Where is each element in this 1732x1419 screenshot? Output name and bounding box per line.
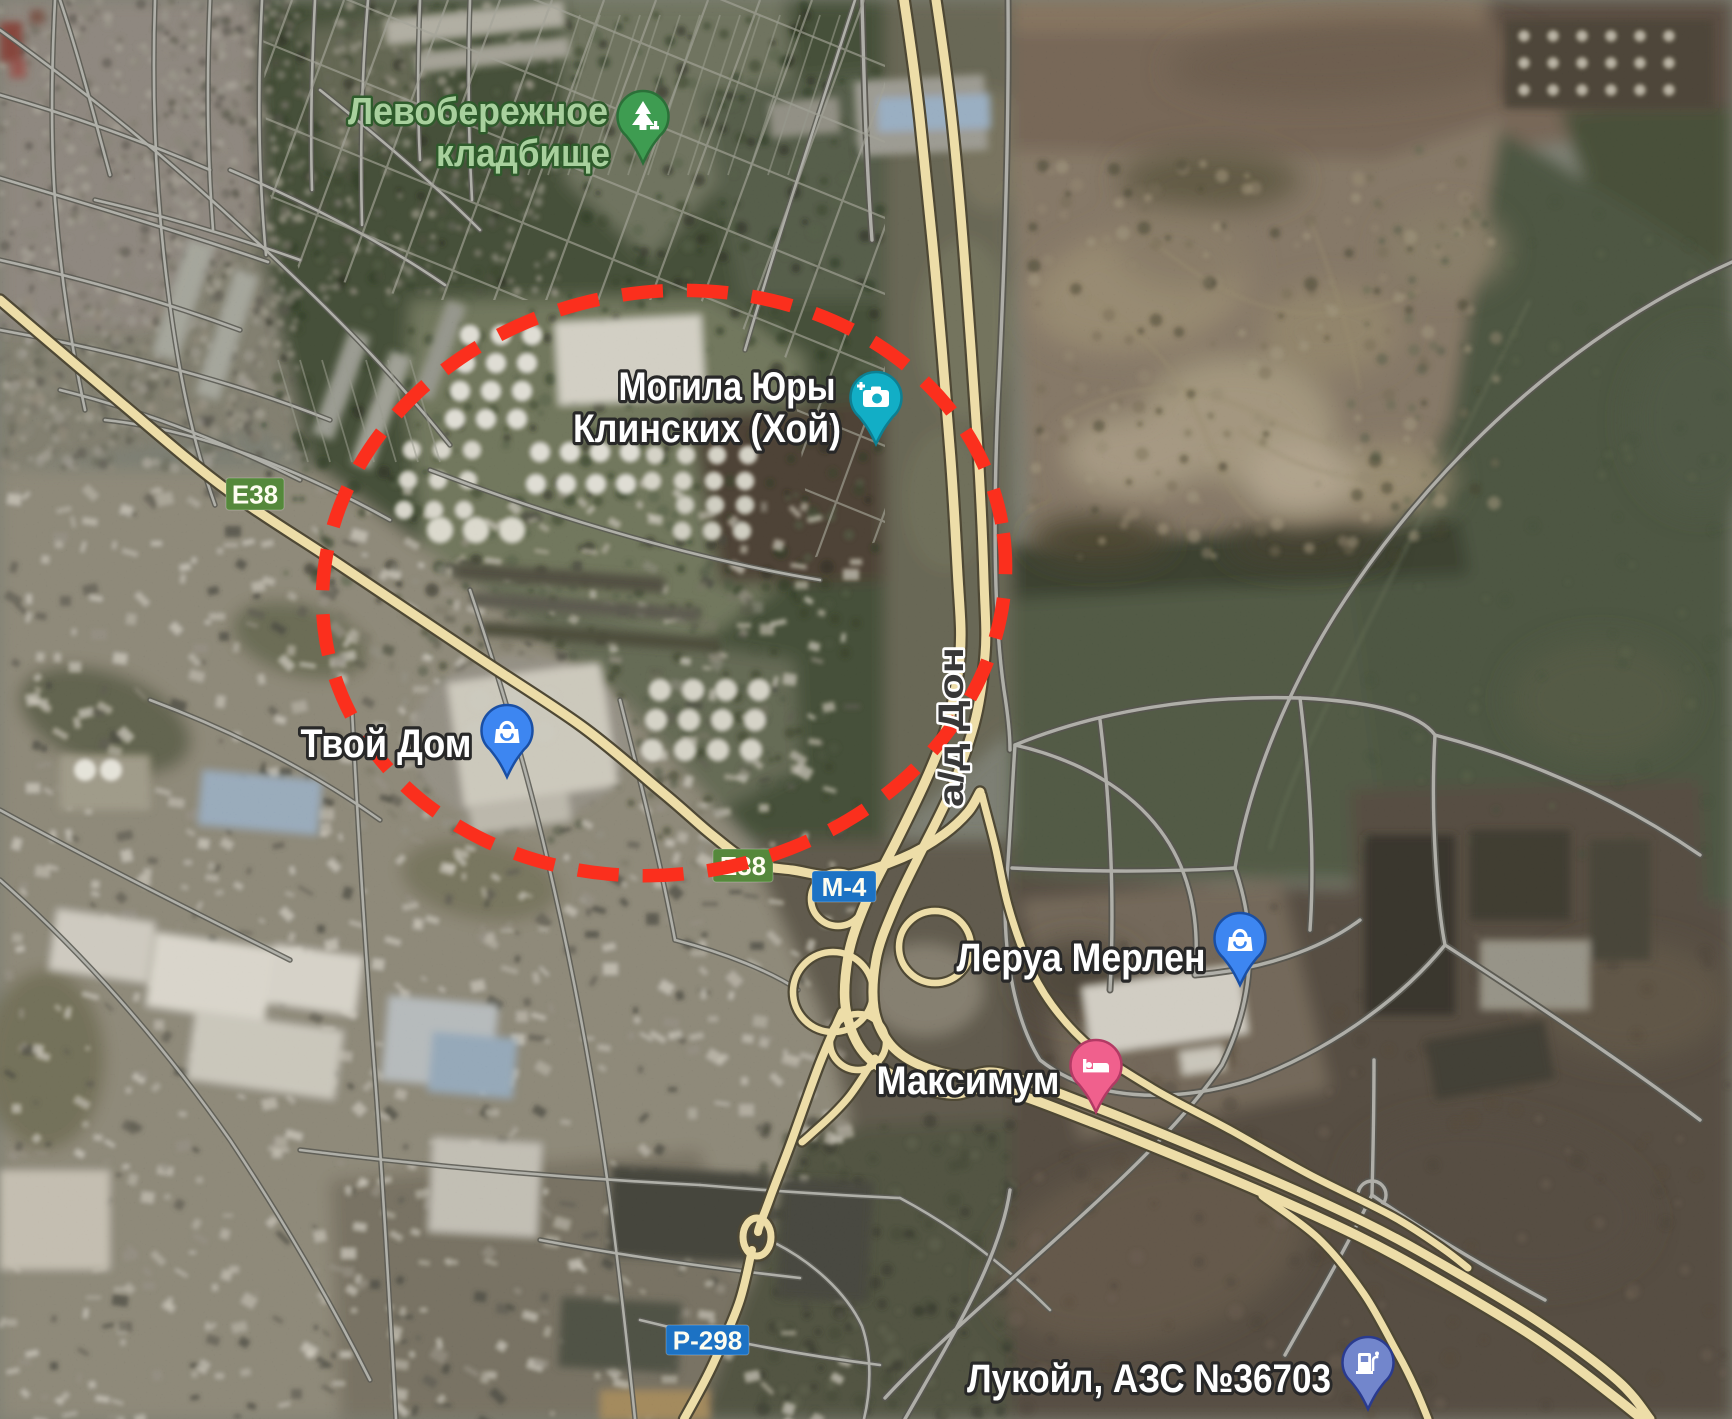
svg-text:Могила Юры: Могила Юры [619, 365, 836, 409]
svg-text:Лукойл, АЗС №36703: Лукойл, АЗС №36703 [967, 1357, 1331, 1401]
svg-text:Клинских (Хой): Клинских (Хой) [573, 407, 841, 451]
svg-text:Е38: Е38 [232, 479, 278, 509]
svg-text:Твой Дом: Твой Дом [301, 722, 472, 766]
svg-text:кладбище: кладбище [436, 133, 610, 175]
svg-text:Р-298: Р-298 [673, 1325, 742, 1355]
svg-text:Леруа Мерлен: Леруа Мерлен [957, 936, 1206, 980]
svg-text:Максимум: Максимум [877, 1059, 1060, 1103]
svg-text:Левобережное: Левобережное [348, 91, 608, 133]
svg-text:М-4: М-4 [822, 872, 867, 902]
svg-text:а/д Дон: а/д Дон [932, 647, 971, 807]
